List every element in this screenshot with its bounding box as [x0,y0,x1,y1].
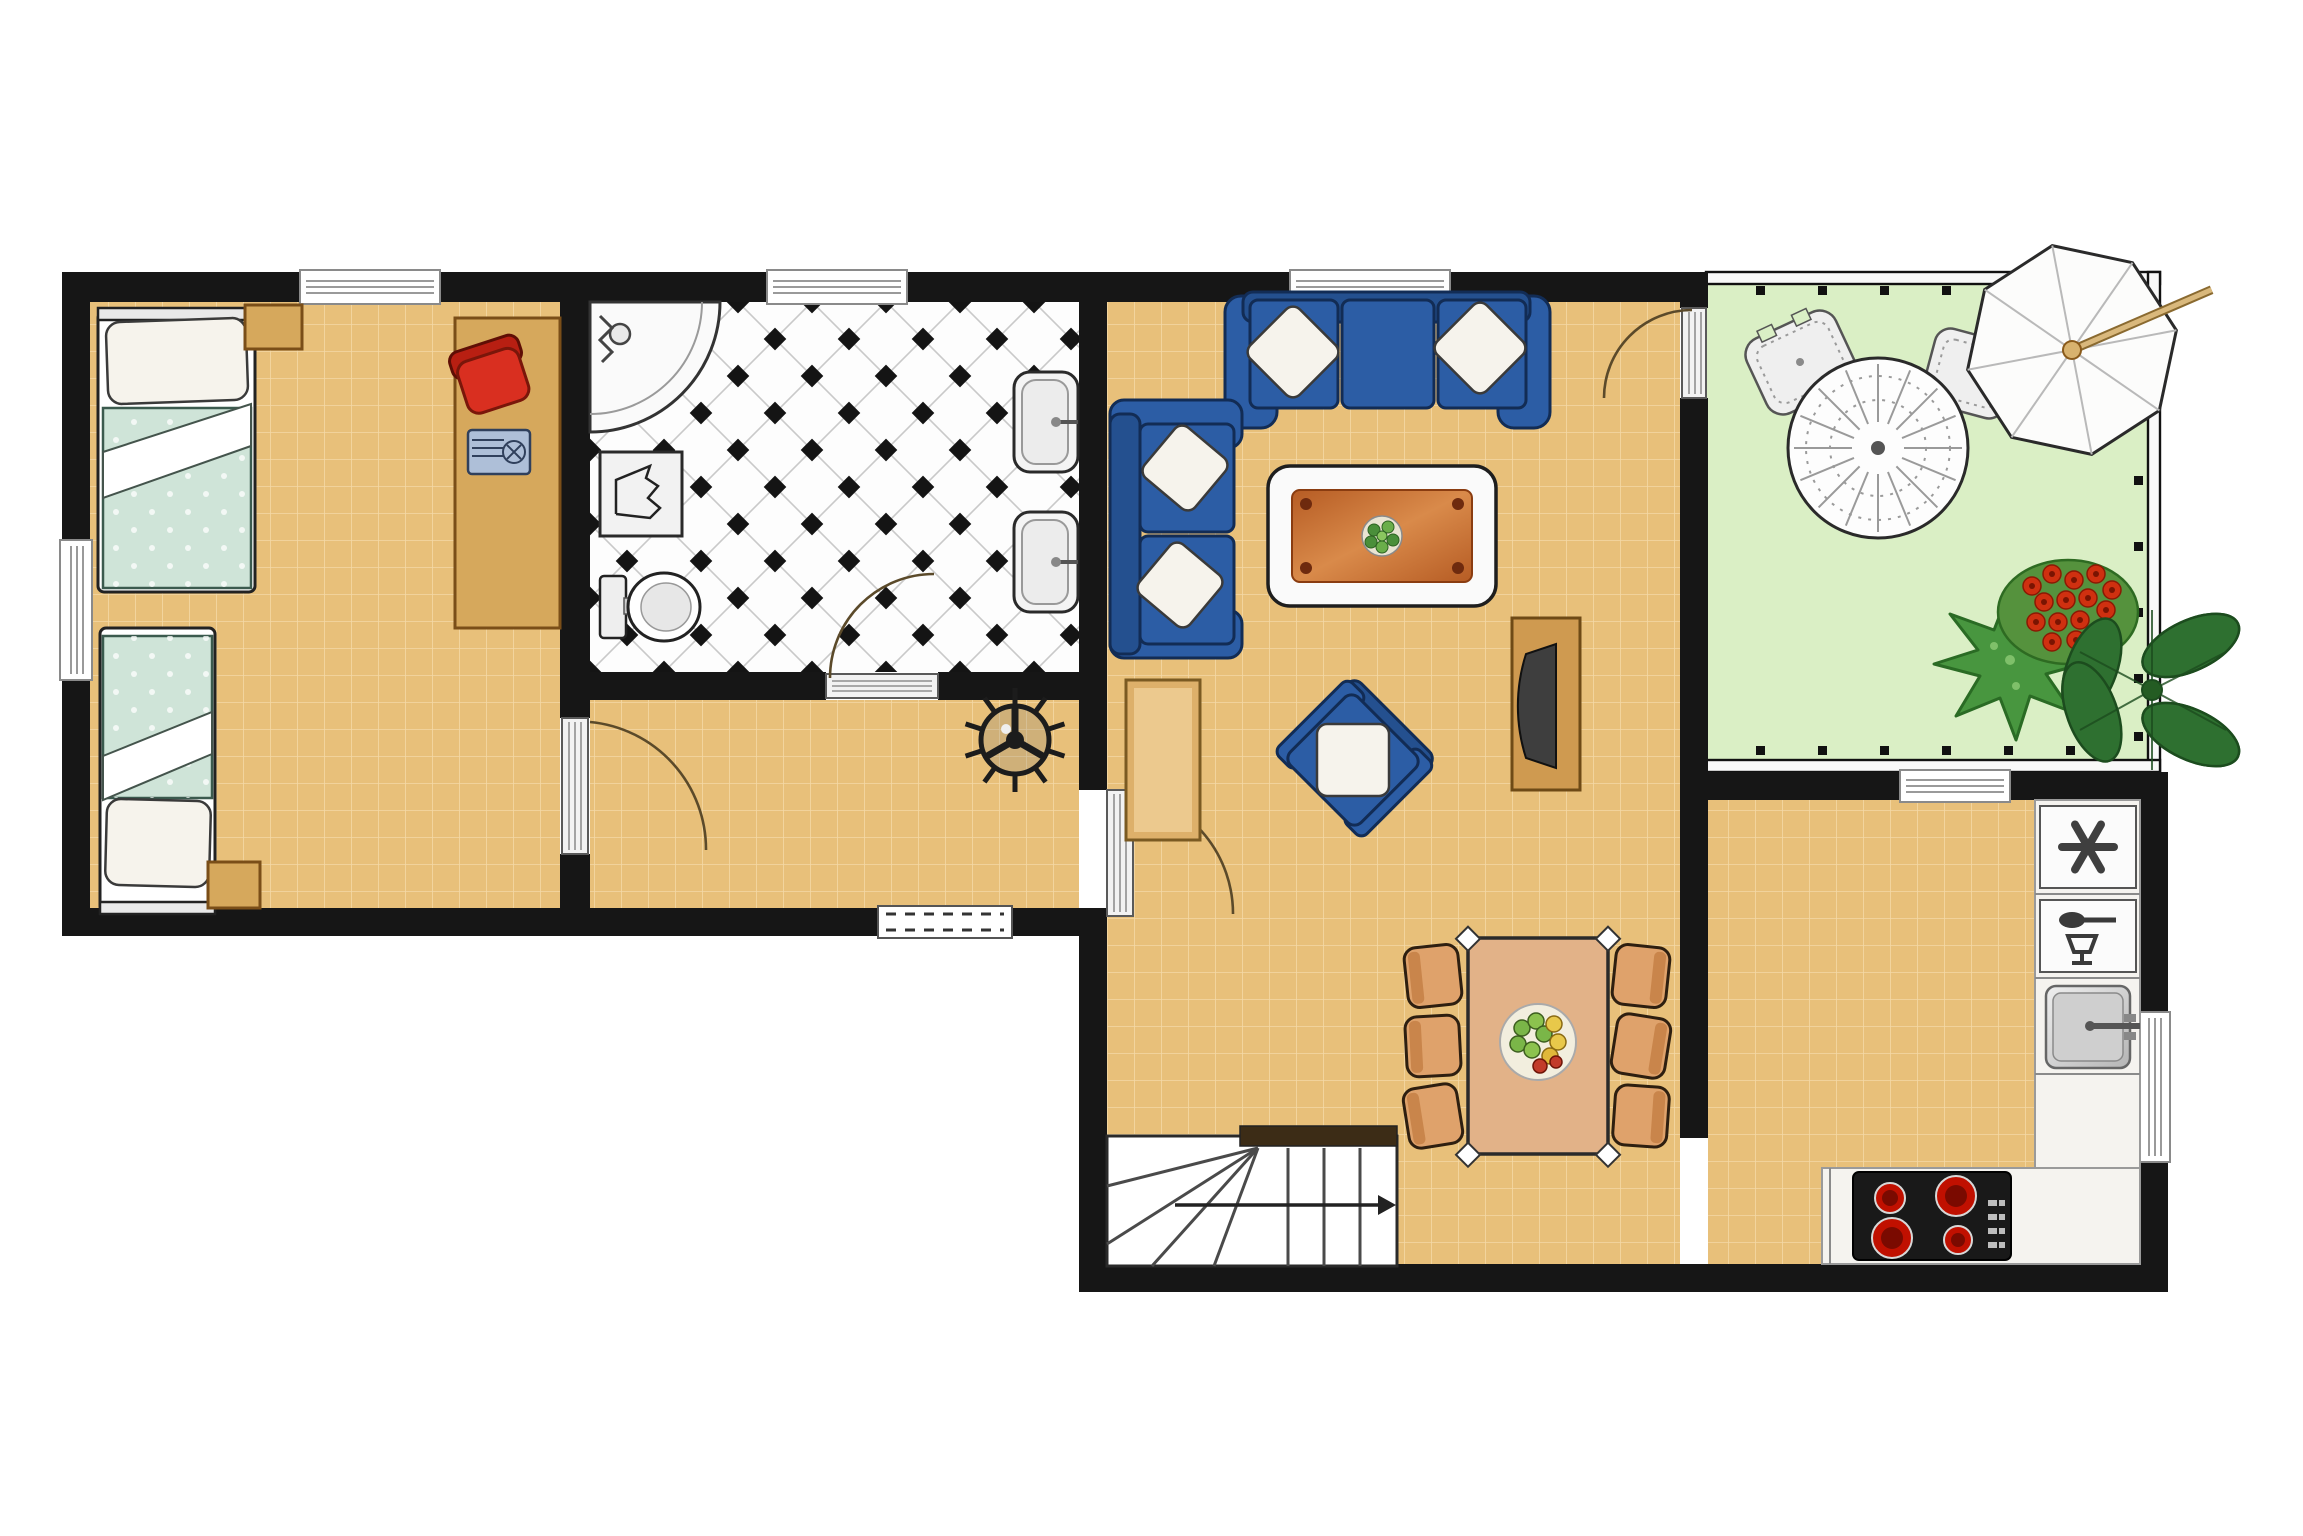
single-bed-bottom [100,628,215,914]
dining-table [1456,927,1620,1167]
nightstand-bottom [208,862,260,908]
bathroom-top-window [767,270,907,304]
tv-screen [1518,644,1556,768]
bedroom-left-window [60,540,92,680]
laptop [468,430,530,474]
side-table [1126,680,1200,840]
kitchen-right-window [2138,1012,2170,1162]
floor-plan-canvas [0,0,2303,1536]
dining-set [1402,927,1673,1167]
throw-pillow [1317,724,1389,796]
three-seat-sofa [1225,292,1550,428]
kitchen-sink [2046,986,2140,1068]
wash-basin-upper [1014,372,1078,472]
wash-basin-lower [1014,512,1078,612]
floor-plan-page [0,0,2303,1536]
front-entrance-mat [878,906,1012,938]
fruit-bowl [1500,1004,1576,1080]
staircase [1107,1126,1397,1266]
dishwasher [2040,900,2136,972]
laundry-box [600,452,682,536]
bedroom-top-window [300,270,440,304]
tv-bench [1512,618,1580,790]
round-lace-table [1788,358,1968,538]
coffee-table [1268,466,1496,606]
two-seat-sofa [1110,400,1242,658]
freezer [2040,806,2136,888]
toilet [600,573,700,641]
cooktop [1853,1172,2011,1260]
kitchen-top-window [1900,770,2010,802]
single-bed-top [98,308,255,592]
nightstand-top [245,305,302,349]
table-plant [1362,516,1402,556]
